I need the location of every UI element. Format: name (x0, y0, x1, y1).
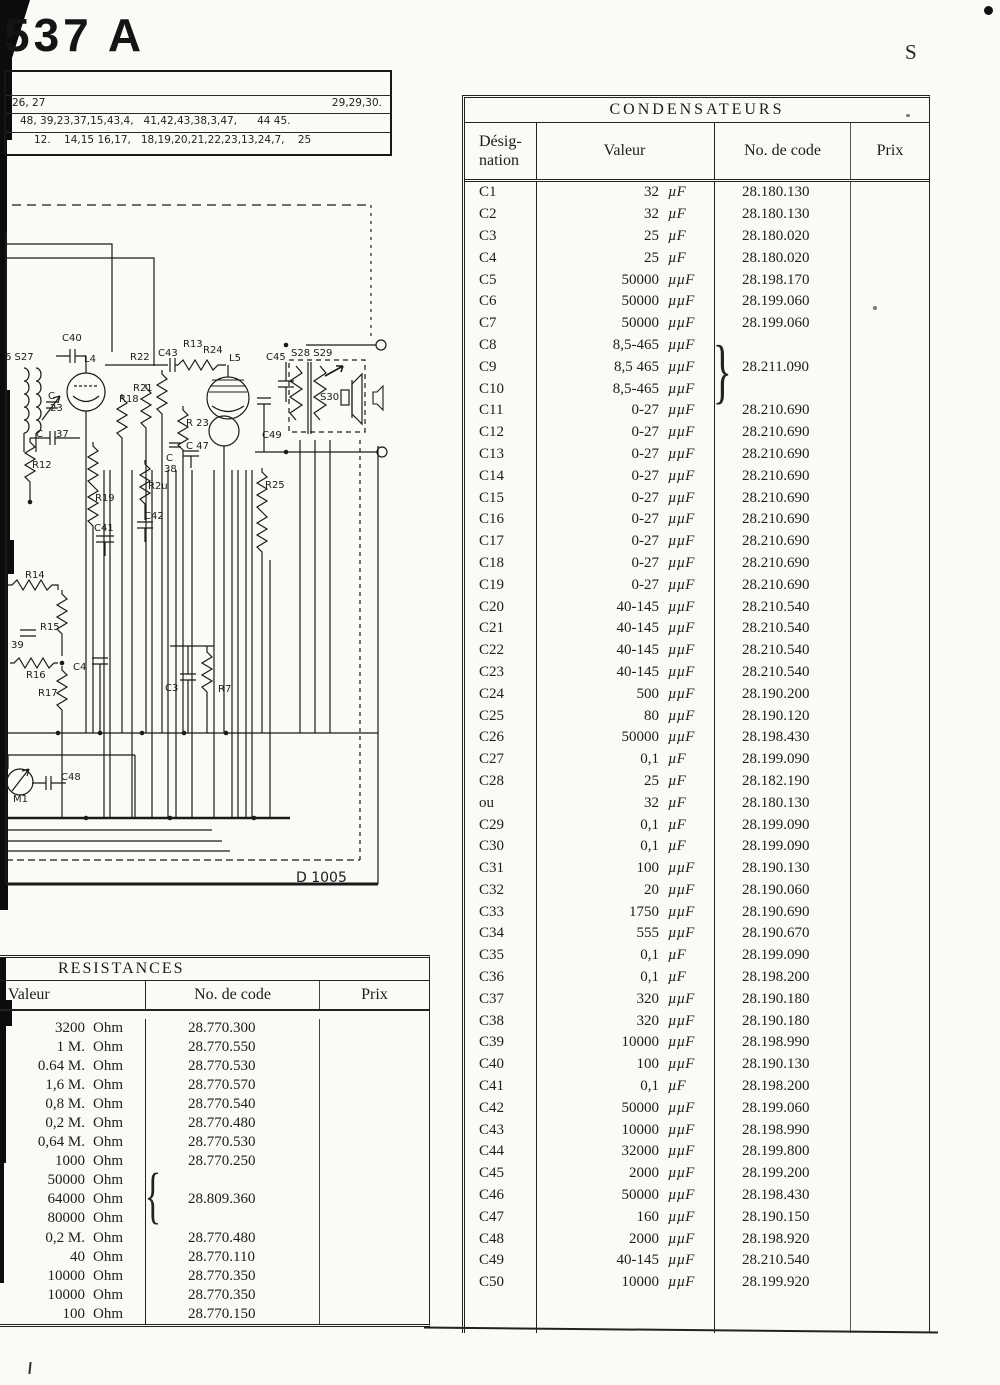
cond-valeur: 0,1µF (537, 945, 715, 967)
schematic-label: R19 (95, 493, 115, 504)
res-valeur-number: 1 M. (0, 1039, 85, 1056)
cond-valeur: 0-27µµF (537, 553, 715, 575)
schematic-label: M1 (13, 794, 28, 805)
cond-prix (851, 574, 929, 596)
cond-prix (851, 247, 929, 269)
res-valeur-unit: Ohm (85, 1077, 141, 1094)
cond-prix (851, 1119, 929, 1141)
cond-valeur-number: 0,1 (537, 751, 659, 768)
cond-code: 28.210.690 (715, 487, 851, 509)
cond-prix (851, 335, 929, 357)
cond-valeur-number: 20 (537, 882, 659, 899)
condensateurs-title: CONDENSATEURS (465, 98, 929, 123)
cond-code: 28.190.670 (715, 923, 851, 945)
cond-valeur: 10000µµF (537, 1119, 715, 1141)
res-valeur: 0,64 M.Ohm (0, 1133, 146, 1152)
cond-valeur-number: 2000 (537, 1165, 659, 1182)
cond-valeur: 32µF (537, 182, 715, 204)
cond-designation: C42 (465, 1097, 537, 1119)
table-row: C180-27µµF28.210.690 (465, 553, 929, 575)
table-row: C4940-145µµF28.210.540 (465, 1250, 929, 1272)
table-row: 3200Ohm28.770.300 (0, 1019, 429, 1038)
cond-prix (851, 901, 929, 923)
res-code: 28.770.300 (146, 1019, 320, 1038)
cond-prix (851, 858, 929, 880)
table-row: 1,6 M.Ohm28.770.570 (0, 1076, 429, 1095)
cond-prix (851, 378, 929, 400)
cond-designation: C41 (465, 1076, 537, 1098)
cond-valeur: 50000µµF (537, 269, 715, 291)
resistances-body: 3200Ohm28.770.3001 M.Ohm28.770.5500.64 M… (0, 1011, 429, 1325)
table-row: 10000Ohm28.770.350 (0, 1286, 429, 1305)
res-valeur-unit: Ohm (85, 1020, 141, 1037)
cond-valeur: 40-145µµF (537, 662, 715, 684)
cond-code: 28.180.130 (715, 792, 851, 814)
cond-valeur-unit: µµF (659, 991, 712, 1008)
res-valeur-unit: Ohm (85, 1134, 141, 1151)
cond-valeur: 20µµF (537, 880, 715, 902)
cond-valeur: 40-145µµF (537, 1250, 715, 1272)
res-prix (320, 1057, 429, 1076)
cond-valeur-number: 160 (537, 1209, 659, 1226)
tube-l5 (207, 377, 249, 733)
table-row: C410,1µF28.198.200 (465, 1076, 929, 1098)
cond-valeur-number: 500 (537, 686, 659, 703)
schematic-label: L4 (84, 354, 96, 365)
res-code: 28.770.480 (146, 1229, 320, 1248)
cond-valeur-unit: µµF (659, 1122, 712, 1139)
table-row: C40100µµF28.190.130 (465, 1054, 929, 1076)
cond-valeur: 50000µµF (537, 313, 715, 335)
cond-designation: C16 (465, 509, 537, 531)
cond-valeur-unit: µµF (659, 1231, 712, 1248)
condensateurs-body: C132µF28.180.130C232µF28.180.130C325µF28… (465, 182, 929, 1294)
cond-code: 28.210.540 (715, 596, 851, 618)
cond-valeur: 40-145µµF (537, 596, 715, 618)
schematic-label: C (36, 429, 43, 440)
cond-valeur: 0,1µF (537, 836, 715, 858)
res-valeur-unit: Ohm (85, 1191, 141, 1208)
res-code: 28.770.530 (146, 1133, 320, 1152)
cond-valeur-number: 40-145 (537, 620, 659, 637)
cond-code: 28.210.690 (715, 509, 851, 531)
cond-valeur-unit: µµF (659, 1187, 712, 1204)
res-valeur: 1 M.Ohm (0, 1038, 146, 1057)
cond-prix (851, 400, 929, 422)
table-row: C4432000µµF28.199.800 (465, 1141, 929, 1163)
cond-valeur: 50000µµF (537, 727, 715, 749)
table-row: 100Ohm28.770.150 (0, 1305, 429, 1324)
cond-valeur: 8,5 465µµF (537, 356, 715, 378)
schematic-label: S30 (320, 392, 339, 403)
cond-designation: C25 (465, 705, 537, 727)
table-row: 1 M.Ohm28.770.550 (0, 1038, 429, 1057)
cond-valeur-unit: µµF (659, 599, 712, 616)
cond-valeur-unit: µµF (659, 293, 712, 310)
schematic-label: C40 (62, 333, 82, 344)
res-prix (320, 1114, 429, 1133)
table-row: 40Ohm28.770.110 (0, 1248, 429, 1267)
schematic-label: 6 S27 (5, 352, 34, 363)
cond-code: 28.190.150 (715, 1206, 851, 1228)
cond-valeur-number: 555 (537, 925, 659, 942)
res-valeur-number: 1,6 M. (0, 1077, 85, 1094)
table-row: C425µF28.180.020 (465, 247, 929, 269)
cond-prix (851, 1032, 929, 1054)
cond-prix (851, 771, 929, 793)
cond-valeur-number: 50000 (537, 272, 659, 289)
schematic-label: R15 (40, 622, 60, 633)
cond-valeur: 1750µµF (537, 901, 715, 923)
res-valeur-unit: Ohm (85, 1268, 141, 1285)
cond-valeur-number: 32 (537, 184, 659, 201)
cond-code: 28.210.690 (715, 400, 851, 422)
table-row: 0,2 M.Ohm28.770.480 (0, 1114, 429, 1133)
schematic-label: C3 (165, 683, 178, 694)
cond-prix (851, 422, 929, 444)
res-valeur-unit: Ohm (85, 1230, 141, 1247)
cond-prix (851, 1250, 929, 1272)
resistances-title: RESISTANCES (0, 958, 429, 981)
res-code: 28.770.530 (146, 1057, 320, 1076)
res-code: 28.770.250 (146, 1152, 320, 1171)
schematic-label: 23 (50, 403, 63, 414)
cond-valeur: 0-27µµF (537, 400, 715, 422)
cond-valeur: 2000µµF (537, 1163, 715, 1185)
schematic-label: 39 (11, 640, 24, 651)
cond-valeur-unit: µµF (659, 402, 712, 419)
scan-speck (28, 1362, 31, 1374)
table-row: C5010000µµF28.199.920 (465, 1272, 929, 1294)
cond-valeur-number: 0-27 (537, 555, 659, 572)
cond-valeur-unit: µF (659, 184, 712, 201)
res-code: 28.770.350 (146, 1267, 320, 1286)
cond-designation: C9 (465, 356, 537, 378)
cond-valeur-unit: µµF (659, 490, 712, 507)
res-valeur: 0,2 M.Ohm (0, 1114, 146, 1133)
cond-valeur-unit: µµF (659, 904, 712, 921)
cond-code: 28.190.690 (715, 901, 851, 923)
cond-code: 28.199.090 (715, 749, 851, 771)
cond-designation: C20 (465, 596, 537, 618)
table-row: C47160µµF28.190.150 (465, 1206, 929, 1228)
cond-code: 28.180.130 (715, 182, 851, 204)
res-prix (320, 1133, 429, 1152)
cond-prix (851, 945, 929, 967)
table-row: C34555µµF28.190.670 (465, 923, 929, 945)
cond-prix (851, 444, 929, 466)
schematic-label: C41 (94, 523, 114, 534)
cond-valeur-unit: µµF (659, 686, 712, 703)
res-valeur-number: 0,8 M. (0, 1096, 85, 1113)
cond-valeur: 0-27µµF (537, 574, 715, 596)
cond-valeur: 500µµF (537, 683, 715, 705)
res-valeur-number: 64000 (0, 1191, 85, 1208)
cond-valeur-unit: µµF (659, 1013, 712, 1030)
cond-valeur: 50000µµF (537, 1185, 715, 1207)
cond-valeur: 25µF (537, 771, 715, 793)
cond-prix (851, 1185, 929, 1207)
table-row: 80000Ohm (0, 1209, 429, 1228)
table-row: C232µF28.180.130 (465, 204, 929, 226)
cond-designation: C19 (465, 574, 537, 596)
cond-code: 28.198.170 (715, 269, 851, 291)
resistances-header: Valeur No. de code Prix (0, 981, 429, 1011)
cond-valeur: 320µµF (537, 1010, 715, 1032)
table-row: 0,64 M.Ohm28.770.530 (0, 1133, 429, 1152)
schematic-label: R18 (119, 394, 139, 405)
res-valeur-unit: Ohm (85, 1287, 141, 1304)
cond-designation: C29 (465, 814, 537, 836)
cond-designation: C34 (465, 923, 537, 945)
cond-valeur-number: 25 (537, 773, 659, 790)
cond-designation: C46 (465, 1185, 537, 1207)
cond-prix (851, 204, 929, 226)
cond-prix (851, 749, 929, 771)
cond-designation: C21 (465, 618, 537, 640)
cond-valeur-unit: µµF (659, 642, 712, 659)
cond-valeur-number: 100 (537, 1056, 659, 1073)
cond-valeur: 50000µµF (537, 291, 715, 313)
cond-valeur-number: 0,1 (537, 969, 659, 986)
service-sheet-page: 537 A S 26, 27 29,29,30. 48, 39,23,37,15… (0, 0, 1000, 1385)
cond-valeur-number: 40-145 (537, 664, 659, 681)
schematic-label: R2u (148, 481, 168, 492)
res-code: 28.770.480 (146, 1114, 320, 1133)
res-valeur-number: 10000 (0, 1268, 85, 1285)
cond-valeur-number: 320 (537, 991, 659, 1008)
res-prix (320, 1286, 429, 1305)
table-row: 1000Ohm28.770.250 (0, 1152, 429, 1171)
cond-valeur-number: 50000 (537, 1100, 659, 1117)
res-code: 28.770.150 (146, 1305, 320, 1324)
cond-valeur: 0-27µµF (537, 509, 715, 531)
cond-valeur-unit: µµF (659, 468, 712, 485)
cond-valeur-number: 0-27 (537, 533, 659, 550)
res-valeur: 0.64 M.Ohm (0, 1057, 146, 1076)
cond-designation: C11 (465, 400, 537, 422)
cond-code: 28.199.090 (715, 814, 851, 836)
table-row: C452000µµF28.199.200 (465, 1163, 929, 1185)
cond-designation: C27 (465, 749, 537, 771)
schematic-label: 38 (164, 464, 177, 475)
cond-code: 28.210.690 (715, 531, 851, 553)
cond-code: 28.210.540 (715, 618, 851, 640)
table-row: C550000µµF28.198.170 (465, 269, 929, 291)
schematic-label: C49 (262, 430, 282, 441)
cond-valeur-unit: µF (659, 773, 712, 790)
cond-valeur: 10000µµF (537, 1032, 715, 1054)
table-row: C2240-145µµF28.210.540 (465, 640, 929, 662)
schematic-label: R12 (32, 460, 52, 471)
table-row: C650000µµF28.199.060 (465, 291, 929, 313)
cond-valeur: 0-27µµF (537, 444, 715, 466)
cond-designation: C48 (465, 1228, 537, 1250)
cond-designation: C7 (465, 313, 537, 335)
cond-valeur-unit: µF (659, 795, 712, 812)
table-row: 50000Ohm (0, 1171, 429, 1190)
cond-valeur-unit: µF (659, 751, 712, 768)
cond-valeur-number: 100 (537, 860, 659, 877)
cond-designation: C18 (465, 553, 537, 575)
res-code: 28.770.110 (146, 1248, 320, 1267)
cond-designation: C8 (465, 335, 537, 357)
cond-valeur: 0-27µµF (537, 531, 715, 553)
cond-valeur: 50000µµF (537, 1097, 715, 1119)
cond-prix (851, 792, 929, 814)
cond-code: 28.210.690 (715, 553, 851, 575)
cond-code: 28.199.090 (715, 945, 851, 967)
cond-valeur: 25µF (537, 226, 715, 248)
table-row: C150-27µµF28.210.690 (465, 487, 929, 509)
cond-designation: C17 (465, 531, 537, 553)
cond-valeur-number: 0-27 (537, 402, 659, 419)
res-code: 28.770.550 (146, 1038, 320, 1057)
res-prix (320, 1267, 429, 1286)
res-valeur-number: 10000 (0, 1287, 85, 1304)
schematic-label: C43 (158, 348, 178, 359)
cond-designation: C2 (465, 204, 537, 226)
table-row: C140-27µµF28.210.690 (465, 465, 929, 487)
cond-designation: C5 (465, 269, 537, 291)
cond-prix (851, 1163, 929, 1185)
cond-valeur-number: 25 (537, 228, 659, 245)
table-row: C2340-145µµF28.210.540 (465, 662, 929, 684)
cond-designation: C6 (465, 291, 537, 313)
table-row: C24500µµF28.190.200 (465, 683, 929, 705)
table-row: C160-27µµF28.210.690 (465, 509, 929, 531)
schematic-label: R25 (265, 480, 285, 491)
res-prix (320, 1038, 429, 1057)
condensateurs-table: CONDENSATEURS Désig- nation Valeur No. d… (462, 95, 930, 1333)
cond-valeur-number: 0-27 (537, 446, 659, 463)
cond-valeur-unit: µµF (659, 424, 712, 441)
cond-valeur-unit: µµF (659, 555, 712, 572)
res-prix (320, 1019, 429, 1038)
cond-code: 28.190.200 (715, 683, 851, 705)
res-valeur-unit: Ohm (85, 1172, 141, 1189)
cond-prix (851, 596, 929, 618)
cond-code: 28.210.540 (715, 1250, 851, 1272)
column-header-valeur: Valeur (0, 981, 146, 1009)
res-prix (320, 1152, 429, 1171)
table-row: C4250000µµF28.199.060 (465, 1097, 929, 1119)
cond-designation: C43 (465, 1119, 537, 1141)
table-row: C38320µµF28.190.180 (465, 1010, 929, 1032)
cond-valeur: 0-27µµF (537, 422, 715, 444)
table-row: C3220µµF28.190.060 (465, 880, 929, 902)
table-row: 64000Ohm28.809.360 (0, 1190, 429, 1209)
cond-designation: C45 (465, 1163, 537, 1185)
cond-designation: C38 (465, 1010, 537, 1032)
cond-prix (851, 727, 929, 749)
cond-designation: C23 (465, 662, 537, 684)
column-header-prix: Prix (851, 123, 929, 179)
cond-code: 28.198.430 (715, 1185, 851, 1207)
cond-valeur-number: 80 (537, 708, 659, 725)
table-row: C88,5-465µµF (465, 335, 929, 357)
cond-valeur: 8,5-465µµF (537, 335, 715, 357)
cond-valeur-number: 50000 (537, 293, 659, 310)
cond-valeur-unit: µF (659, 206, 712, 223)
cond-valeur-unit: µµF (659, 1209, 712, 1226)
cond-valeur-unit: µF (659, 969, 712, 986)
cond-valeur-unit: µµF (659, 446, 712, 463)
cond-valeur-unit: µµF (659, 577, 712, 594)
cond-valeur: 320µµF (537, 988, 715, 1010)
cond-valeur-number: 0,1 (537, 947, 659, 964)
tube-l4 (67, 356, 105, 733)
cond-prix (851, 313, 929, 335)
cond-code: 28.211.090 (715, 356, 851, 378)
cond-designation: C13 (465, 444, 537, 466)
table-row: C482000µµF28.198.920 (465, 1228, 929, 1250)
cond-valeur-number: 10000 (537, 1122, 659, 1139)
table-row: C2580µµF28.190.120 (465, 705, 929, 727)
cond-valeur-number: 0,1 (537, 838, 659, 855)
page-corner-letter: S (905, 40, 917, 65)
cond-valeur-number: 8,5-465 (537, 381, 659, 398)
res-valeur-number: 1000 (0, 1153, 85, 1170)
table-row: C4310000µµF28.198.990 (465, 1119, 929, 1141)
schematic-label: R17 (38, 688, 58, 699)
res-valeur-number: 0,64 M. (0, 1134, 85, 1151)
cond-valeur-number: 8,5 465 (537, 359, 659, 376)
cond-valeur-unit: µµF (659, 1165, 712, 1182)
schematic-label: R21 (133, 383, 153, 394)
scan-artifact-dot (984, 6, 993, 15)
table-row: C331750µµF28.190.690 (465, 901, 929, 923)
table-row: C300,1µF28.199.090 (465, 836, 929, 858)
cond-valeur-unit: µµF (659, 925, 712, 942)
res-valeur: 3200Ohm (0, 1019, 146, 1038)
table-row: 0.64 M.Ohm28.770.530 (0, 1057, 429, 1076)
column-header-designation: Désig- nation (465, 123, 537, 179)
cond-code: 28.199.800 (715, 1141, 851, 1163)
cond-prix (851, 923, 929, 945)
cond-code: 28.198.990 (715, 1032, 851, 1054)
table-row: C325µF28.180.020 (465, 226, 929, 248)
cond-valeur-unit: µF (659, 947, 712, 964)
cond-code: 28.199.060 (715, 1097, 851, 1119)
cond-valeur: 160µµF (537, 1206, 715, 1228)
cond-valeur: 0-27µµF (537, 487, 715, 509)
cond-valeur-unit: µµF (659, 315, 712, 332)
cond-code: 28.198.920 (715, 1228, 851, 1250)
cond-designation: C10 (465, 378, 537, 400)
schematic-label: C42 (144, 511, 164, 522)
table-row: C2040-145µµF28.210.540 (465, 596, 929, 618)
cond-code: 28.198.430 (715, 727, 851, 749)
table-row: C130-27µµF28.210.690 (465, 444, 929, 466)
schematic-label: R22 (130, 352, 150, 363)
cond-designation: C50 (465, 1272, 537, 1294)
cond-prix (851, 683, 929, 705)
cond-prix (851, 1206, 929, 1228)
cond-valeur-number: 2000 (537, 1231, 659, 1248)
cond-valeur: 100µµF (537, 858, 715, 880)
cond-prix (851, 988, 929, 1010)
cond-valeur: 25µF (537, 247, 715, 269)
res-valeur-unit: Ohm (85, 1306, 141, 1323)
table-row: 0,2 M.Ohm28.770.480 (0, 1229, 429, 1248)
table-row: C270,1µF28.199.090 (465, 749, 929, 771)
cond-code: 28.199.920 (715, 1272, 851, 1294)
res-valeur: 10000Ohm (0, 1267, 146, 1286)
cond-valeur-unit: µF (659, 228, 712, 245)
res-valeur-number: 50000 (0, 1172, 85, 1189)
res-valeur: 1,6 M.Ohm (0, 1076, 146, 1095)
